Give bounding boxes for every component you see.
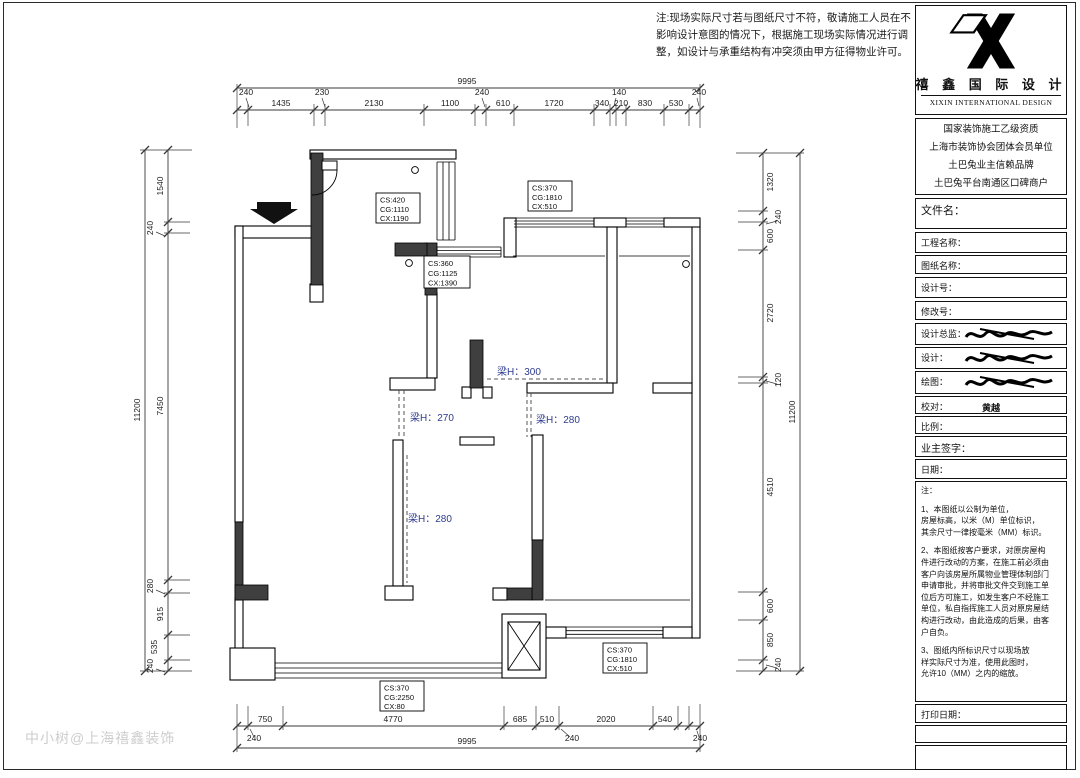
field-print-date: 打印日期： <box>915 704 1067 723</box>
svg-text:CG:2250: CG:2250 <box>384 693 414 702</box>
dim-right-seg: 120 <box>773 373 783 387</box>
signature-director <box>962 324 1057 345</box>
dim-left-seg: 240 <box>145 659 155 673</box>
entry-arrow-icon <box>250 202 298 224</box>
dim-right-seg: 240 <box>773 658 783 672</box>
svg-text:CX:1190: CX:1190 <box>380 214 409 223</box>
window-bottom-right <box>566 627 663 638</box>
notes-title: 注： <box>921 485 1061 497</box>
dim-left-seg: 535 <box>149 640 159 654</box>
title-block: 禧 鑫 国 际 设 计 XIXIN INTERNATIONAL DESIGN 国… <box>913 2 1073 770</box>
signature-drafter <box>962 372 1057 394</box>
dim-left-seg: 7450 <box>155 396 165 415</box>
dim-bottom-seg: 510 <box>540 714 554 724</box>
window-top-2 <box>626 218 664 227</box>
checker-name: 黄越 <box>982 401 1000 414</box>
dim-top-overall: 9995 <box>458 76 477 86</box>
walls-layer <box>230 150 700 680</box>
dim-top-seg: 340 <box>595 98 609 108</box>
dim-top-seg: 1720 <box>545 98 564 108</box>
dim-right-seg: 600 <box>765 229 775 243</box>
company-logo-box: 禧 鑫 国 际 设 计 XIXIN INTERNATIONAL DESIGN <box>915 5 1067 115</box>
dim-bottom-seg: 750 <box>258 714 272 724</box>
credential-line: 土巴兔平台南通区口碑商户 <box>921 175 1061 193</box>
beam-label: 梁H：280 <box>536 413 580 426</box>
field-date: 日期： <box>915 459 1067 479</box>
dim-bottom-seg: 685 <box>513 714 527 724</box>
field-drawing-name: 图纸名称： <box>915 255 1067 274</box>
beam-label: 梁H：270 <box>410 411 454 424</box>
field-label: 校对： <box>921 402 948 412</box>
svg-text:CS:420: CS:420 <box>380 196 405 205</box>
dim-top-seg: 240 <box>239 87 253 97</box>
field-designer: 设计： <box>915 347 1067 369</box>
field-file-name: 文件名： <box>915 198 1067 229</box>
dim-bottom-offset: 240 <box>693 733 707 743</box>
svg-text:CG:1125: CG:1125 <box>428 269 457 278</box>
credentials-box: 国家装饰施工乙级资质 上海市装饰协会团体会员单位 土巴兔业主信赖品牌 土巴兔平台… <box>915 118 1067 195</box>
dim-top-seg: 610 <box>496 98 510 108</box>
dim-top-seg: 530 <box>669 98 683 108</box>
field-drafter: 绘图： <box>915 371 1067 394</box>
hinge-marker <box>412 167 419 174</box>
credential-line: 国家装饰施工乙级资质 <box>921 121 1061 139</box>
company-name-en: XIXIN INTERNATIONAL DESIGN <box>921 95 1061 107</box>
credential-line: 上海市装饰协会团体会员单位 <box>921 139 1061 157</box>
svg-text:CS:360: CS:360 <box>428 259 453 268</box>
field-owner-signature: 业主签字： <box>915 436 1067 457</box>
dim-right-seg: 2720 <box>765 303 775 322</box>
dim-top-seg: 1100 <box>441 98 460 108</box>
credential-line: 土巴兔业主信赖品牌 <box>921 157 1061 175</box>
field-project-name: 工程名称： <box>915 232 1067 253</box>
note-paragraph-2: 2、本图纸按客户要求，对原房屋构 件进行改动的方案，在施工前必须由 客户向该房屋… <box>921 545 1061 638</box>
beam-label: 梁H：300 <box>497 365 541 378</box>
svg-text:CX:1390: CX:1390 <box>428 279 457 288</box>
hinge-marker <box>683 261 690 268</box>
dim-left-overall: 11200 <box>132 398 142 421</box>
window-label-box: CS:370 CG:1810 CX:510 <box>528 181 572 211</box>
empty-row <box>915 725 1067 743</box>
dim-right-seg: 600 <box>765 599 775 613</box>
dim-top-seg: 1435 <box>272 98 291 108</box>
dim-top-seg: 830 <box>638 98 652 108</box>
dim-right-seg: 850 <box>765 633 775 647</box>
field-design-director: 设计总监： <box>915 323 1067 345</box>
dim-bottom-seg: 540 <box>658 714 672 724</box>
dim-right-seg: 240 <box>773 210 783 224</box>
dim-bottom-offset: 240 <box>565 733 579 743</box>
window-label-box: CS:370 CG:1810 CX:510 <box>603 643 647 673</box>
company-logo-icon <box>945 10 1037 72</box>
dim-top-seg: 140 <box>612 87 626 97</box>
dim-top-seg: 240 <box>475 87 489 97</box>
corner-column <box>230 648 275 680</box>
beam-280-upper <box>527 393 531 437</box>
dim-top-seg: 240 <box>692 87 706 97</box>
dim-right-seg: 1320 <box>765 172 775 191</box>
beam-270 <box>399 390 404 438</box>
window-top-1 <box>514 218 594 227</box>
field-label: 设计总监： <box>921 329 966 339</box>
svg-text:CX:510: CX:510 <box>532 202 557 211</box>
floor-plan: 9995 240 1435 230 2130 1100 240 610 1720… <box>0 0 910 778</box>
note-paragraph-3: 3、图纸内所标识尺寸以现场放 样实际尺寸为准，使用此图时， 允许10（MM）之内… <box>921 645 1061 680</box>
elevator-shaft <box>502 614 546 678</box>
field-revision-no: 修改号： <box>915 301 1067 320</box>
window-label-box: CS:360 CG:1125 CX:1390 <box>424 256 470 288</box>
drawing-sheet: 注:现场实际尺寸若与图纸尺寸不符，敬请施工人员在不 影响设计意图的情况下，根据施… <box>0 0 1080 778</box>
svg-text:CX:80: CX:80 <box>384 702 405 711</box>
svg-text:CG:1810: CG:1810 <box>532 193 562 202</box>
svg-text:CS:370: CS:370 <box>384 684 409 693</box>
svg-text:CS:370: CS:370 <box>532 184 557 193</box>
window-hall <box>437 247 501 257</box>
dim-right-seg: 4510 <box>765 477 775 496</box>
empty-row <box>915 745 1067 770</box>
dim-bottom-seg: 4770 <box>384 714 403 724</box>
dim-top-seg: 210 <box>614 98 628 108</box>
hinge-marker <box>406 260 413 267</box>
window-label-box: CS:420 CG:1110 CX:1190 <box>376 193 420 223</box>
field-checker: 校对： 黄越 <box>915 396 1067 414</box>
svg-text:CS:370: CS:370 <box>607 646 632 655</box>
beam-lines <box>399 379 605 583</box>
field-design-no: 设计号： <box>915 277 1067 298</box>
svg-text:CG:1810: CG:1810 <box>607 655 637 664</box>
field-scale: 比例： <box>915 416 1067 434</box>
dim-left-seg: 240 <box>145 221 155 235</box>
beam-label: 梁H：280 <box>408 512 452 525</box>
dim-left-seg: 280 <box>145 579 155 593</box>
dim-bottom-overall: 9995 <box>458 736 477 746</box>
field-label: 设计： <box>921 353 948 363</box>
dim-bottom-seg: 2020 <box>597 714 616 724</box>
note-paragraph-1: 1、本图纸以公制为单位， 房屋标高，以米（M）单位标识， 其余尺寸一律按毫米（M… <box>921 504 1061 539</box>
notes-box: 注： 1、本图纸以公制为单位， 房屋标高，以米（M）单位标识， 其余尺寸一律按毫… <box>915 481 1067 702</box>
dim-bottom-offset: 240 <box>247 733 261 743</box>
field-label: 绘图： <box>921 377 948 387</box>
window-label-box: CS:370 CG:2250 CX:80 <box>380 681 424 711</box>
window-vertical-entry <box>437 162 455 240</box>
svg-text:CG:1110: CG:1110 <box>380 205 409 214</box>
windows-layer <box>275 162 664 678</box>
dim-top-seg: 2130 <box>365 98 384 108</box>
signature-designer <box>962 348 1057 369</box>
dim-right-overall: 11200 <box>787 400 797 423</box>
dim-top-seg: 230 <box>315 87 329 97</box>
door-leaf <box>322 161 337 170</box>
company-name-cn: 禧 鑫 国 际 设 计 <box>915 74 1066 93</box>
svg-text:CX:510: CX:510 <box>607 664 632 673</box>
dim-left-seg: 915 <box>155 607 165 621</box>
window-bottom-left <box>275 663 502 678</box>
dim-left-seg: 1540 <box>155 176 165 195</box>
